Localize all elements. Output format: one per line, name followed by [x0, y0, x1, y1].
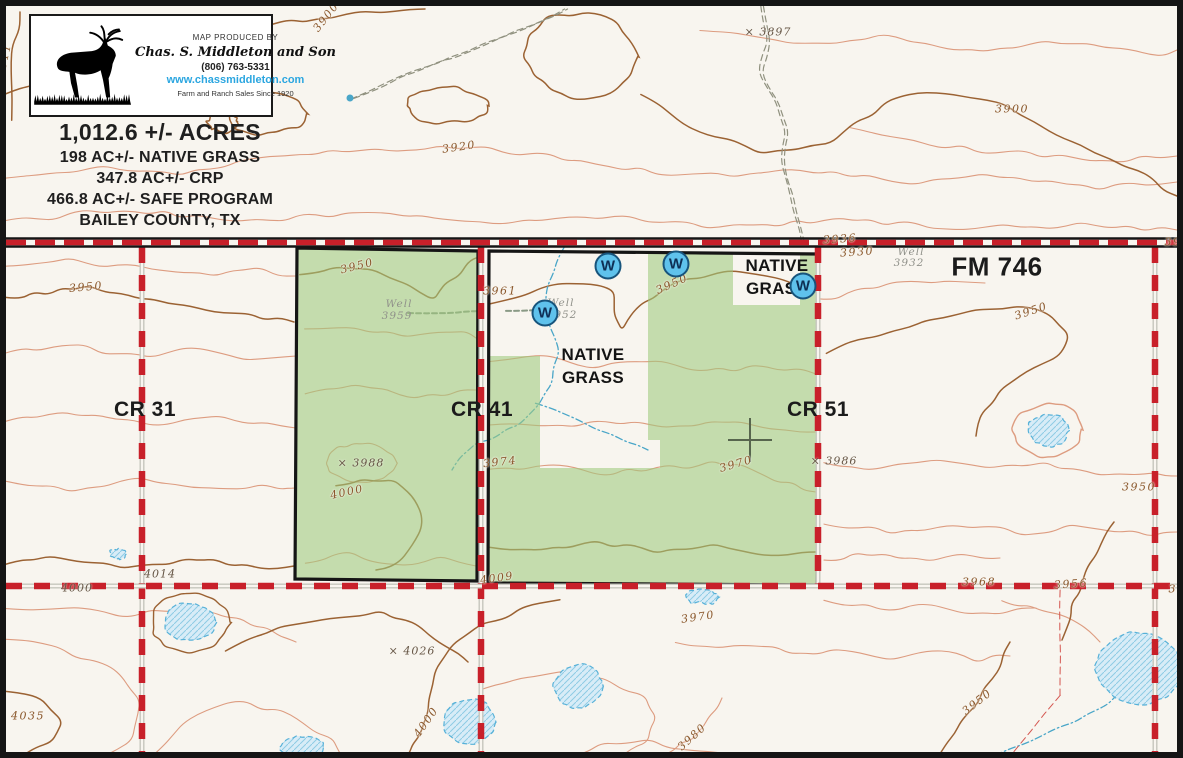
contour-elevation-label: 3950	[960, 686, 995, 717]
native-grass-line: GRASS	[562, 367, 625, 390]
road-label-cr-51: CR 51	[787, 398, 849, 422]
spot-elevation-label: × 3897	[745, 26, 792, 39]
spot-elevation-label: × 3988	[338, 457, 385, 470]
well-marker: W	[790, 273, 817, 300]
road-label-fm-746: FM 746	[951, 252, 1042, 283]
well-feature-label: 3932	[894, 257, 925, 269]
contour-elevation-label: 39	[1169, 583, 1183, 596]
native-grass-label: NATIVEGRASS	[562, 344, 625, 390]
contour-elevation-label: 3950	[1122, 481, 1156, 494]
contour-elevation-label: 3970	[680, 608, 715, 626]
contour-elevation-label: 39	[1165, 236, 1182, 249]
contour-elevation-label: 3961	[483, 285, 517, 298]
spot-elevation-label: × 4026	[389, 645, 436, 658]
produced-by-text: MAP PRODUCED BY	[193, 33, 279, 42]
spot-elevation-label: 4014	[144, 568, 176, 581]
well-marker: W	[532, 300, 559, 327]
native-grass-acres: 198 AC+/- NATIVE GRASS	[14, 149, 306, 167]
contour-elevation-label: 3950	[1013, 300, 1049, 323]
road-label-cr-41: CR 41	[451, 398, 513, 422]
well-marker: W	[595, 253, 622, 280]
contour-elevation-label: 4000	[329, 482, 365, 502]
spot-elevation-label: × 3986	[811, 455, 858, 468]
website-text: www.chassmiddleton.com	[167, 74, 305, 86]
contour-elevation-label: 3920	[441, 138, 476, 156]
native-grass-line: NATIVE	[562, 344, 625, 367]
contour-elevation-label: 3974	[482, 454, 517, 470]
well-feature-label: Well	[386, 298, 413, 310]
contour-elevation-label: 3956	[1054, 576, 1089, 591]
contour-elevation-label: 3970	[718, 453, 754, 475]
well-marker: W	[663, 251, 690, 278]
contour-elevation-label: 3950	[68, 279, 103, 295]
company-name: Chas. S. Middleton and Son	[135, 45, 336, 60]
contour-elevation-label: 4009	[479, 569, 514, 587]
contour-elevation-label: 3930	[840, 244, 875, 259]
county-label: BAILEY COUNTY, TX	[14, 212, 306, 230]
well-feature-label: 3959	[382, 310, 413, 322]
tagline-text: Farm and Ranch Sales Since 1920	[177, 89, 293, 98]
title-block: 1,012.6 +/- ACRES 198 AC+/- NATIVE GRASS…	[14, 119, 306, 230]
contour-elevation-label: 3936	[823, 231, 858, 246]
deer-logo-icon	[31, 16, 135, 115]
crp-acres: 347.8 AC+/- CRP	[14, 170, 306, 188]
contour-elevation-label: 3968	[962, 576, 996, 589]
ranch-map: 39113900× 38973900392039363930Well393239…	[0, 0, 1183, 758]
phone-number: (806) 763-5331	[201, 62, 269, 73]
contour-elevation-label: 3980	[675, 721, 709, 753]
spot-elevation-label: 4000	[61, 582, 93, 595]
contour-elevation-label: 3950	[339, 256, 375, 277]
road-label-cr-31: CR 31	[114, 398, 176, 422]
contour-elevation-label: 4035	[11, 710, 45, 723]
contour-elevation-label: 3911	[0, 42, 14, 78]
contour-elevation-label: 4000	[411, 704, 441, 739]
safe-program-acres: 466.8 AC+/- SAFE PROGRAM	[14, 191, 306, 209]
contour-elevation-label: 3900	[995, 103, 1029, 116]
total-acres-title: 1,012.6 +/- ACRES	[14, 119, 306, 146]
producer-logo-box: MAP PRODUCED BY Chas. S. Middleton and S…	[29, 14, 273, 117]
